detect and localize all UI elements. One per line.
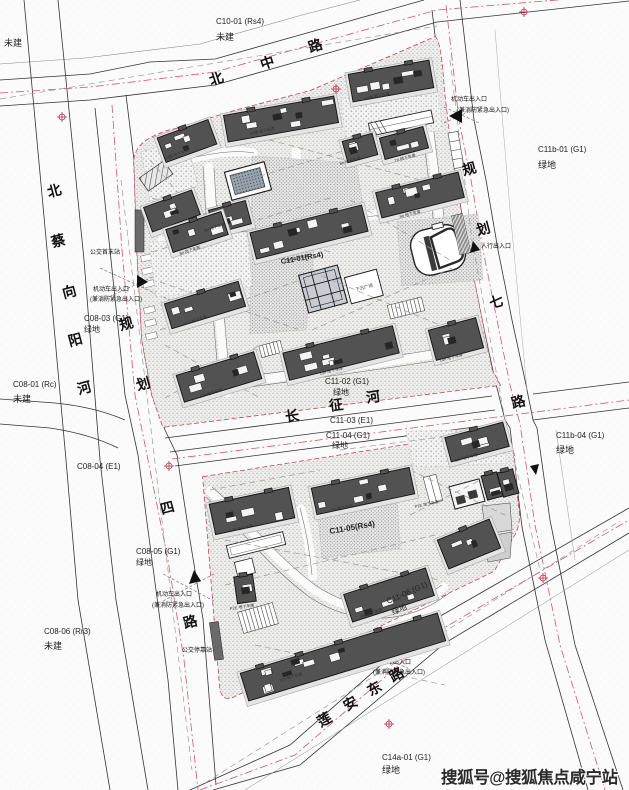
svg-text:未建: 未建 <box>13 393 31 404</box>
svg-text:搜狐号@搜狐焦点咸宁站: 搜狐号@搜狐焦点咸宁站 <box>441 767 619 787</box>
svg-text:C11b-01 (G1): C11b-01 (G1) <box>538 145 587 154</box>
svg-text:公交停靠站: 公交停靠站 <box>182 646 212 654</box>
svg-text:河: 河 <box>365 388 381 406</box>
svg-text:(兼消防紧急出入口): (兼消防紧急出入口) <box>90 295 142 303</box>
svg-text:绿地: 绿地 <box>332 440 348 450</box>
svg-text:绿地: 绿地 <box>382 764 400 775</box>
svg-text:C08-04 (E1): C08-04 (E1) <box>77 462 121 471</box>
svg-text:绿地: 绿地 <box>136 557 152 567</box>
svg-text:(兼消防紧急出入口): (兼消防紧急出入口) <box>152 601 204 609</box>
svg-text:C10-01 (Rs4): C10-01 (Rs4) <box>216 17 264 26</box>
svg-text:机动车出入口: 机动车出入口 <box>93 285 129 293</box>
svg-text:未建: 未建 <box>4 37 22 48</box>
svg-text:人行出入口: 人行出入口 <box>481 242 511 250</box>
svg-text:C08-01 (Rc): C08-01 (Rc) <box>13 380 57 389</box>
svg-text:C14a-01 (G1): C14a-01 (G1) <box>382 753 431 762</box>
svg-text:(兼消防紧急出入口): (兼消防紧急出入口) <box>457 106 509 114</box>
svg-text:公交首末站: 公交首末站 <box>90 248 120 256</box>
svg-text:机动车出入口: 机动车出入口 <box>156 590 192 598</box>
svg-text:未建: 未建 <box>216 31 234 42</box>
svg-text:绿地: 绿地 <box>538 159 556 170</box>
svg-text:C08-06 (Rr3): C08-06 (Rr3) <box>44 627 91 636</box>
svg-text:机动车出入口: 机动车出入口 <box>451 95 487 103</box>
svg-text:征: 征 <box>328 396 344 414</box>
svg-text:未建: 未建 <box>44 640 62 651</box>
svg-text:C11-04 (G1): C11-04 (G1) <box>326 431 370 440</box>
svg-text:C11-02 (G1): C11-02 (G1) <box>325 377 369 386</box>
svg-text:C11b-04 (G1): C11b-04 (G1) <box>556 431 605 440</box>
svg-text:绿地: 绿地 <box>84 324 100 334</box>
svg-text:C08-05 (G1): C08-05 (G1) <box>136 547 181 556</box>
svg-text:绿地: 绿地 <box>556 444 574 455</box>
svg-text:C11-03 (E1): C11-03 (E1) <box>330 416 373 425</box>
